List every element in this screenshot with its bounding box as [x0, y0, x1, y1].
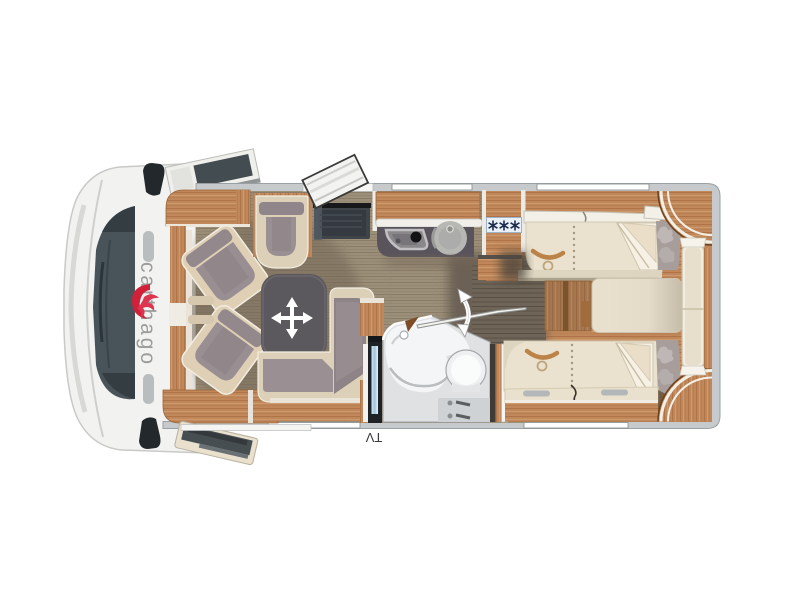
svg-text:TV: TV: [365, 430, 382, 445]
